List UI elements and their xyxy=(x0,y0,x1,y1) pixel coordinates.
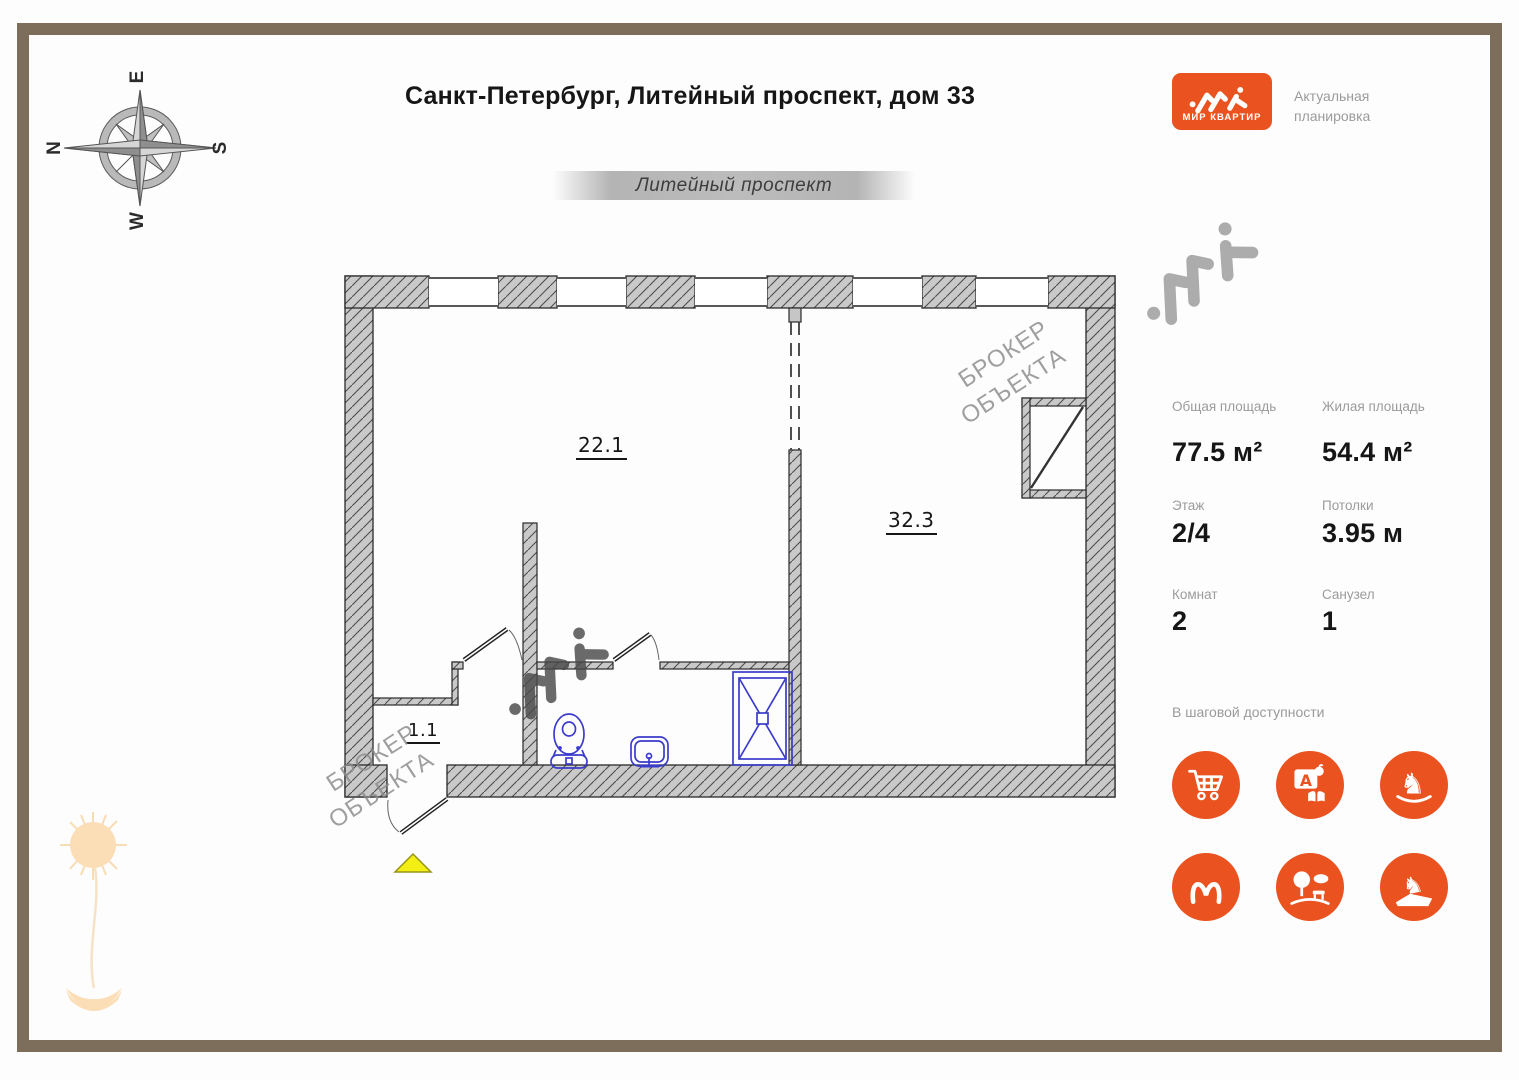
amenity-monument: ♞ xyxy=(1380,853,1448,921)
rooms-label: Комнат xyxy=(1172,585,1282,605)
svg-text:♞: ♞ xyxy=(1400,767,1426,801)
room-main-area-label: 22.1 xyxy=(576,433,627,460)
tagline-line2: планировка xyxy=(1294,106,1414,126)
metro-icon xyxy=(1184,865,1228,909)
school-icon: А xyxy=(1288,763,1332,807)
rocking-horse-icon: ♞ xyxy=(1391,762,1437,808)
street-banner: Литейный проспект xyxy=(553,171,915,200)
living-area-value: 54.4 м² xyxy=(1322,437,1412,468)
floor-value: 2/4 xyxy=(1172,518,1210,549)
compass-left-label: N xyxy=(44,135,70,161)
svg-text:А: А xyxy=(1300,772,1312,790)
mir-kvartir-logo: МИР КВАРТИР xyxy=(1172,73,1272,130)
floor-label: Этаж xyxy=(1172,496,1282,516)
living-area-label: Жилая площадь xyxy=(1322,397,1432,417)
total-area-label: Общая площадь xyxy=(1172,397,1282,417)
bathroom-label: Санузел xyxy=(1322,585,1432,605)
park-icon xyxy=(1288,865,1332,909)
logo-name: МИР КВАРТИР xyxy=(1172,112,1272,123)
flyer-page: Санкт-Петербург, Литейный проспект, дом … xyxy=(0,0,1519,1080)
amenities-title: В шаговой доступности xyxy=(1172,704,1324,720)
compass-right-label: S xyxy=(210,135,236,161)
bathroom-value: 1 xyxy=(1322,606,1337,637)
amenity-kindergarten: ♞ xyxy=(1380,751,1448,819)
rooms-value: 2 xyxy=(1172,606,1187,637)
tagline-line1: Актуальная xyxy=(1294,86,1414,106)
page-title: Санкт-Петербург, Литейный проспект, дом … xyxy=(340,82,1040,111)
logo-tagline: Актуальная планировка xyxy=(1294,86,1414,127)
amenity-park xyxy=(1276,853,1344,921)
room-second-area-label: 32.3 xyxy=(886,508,937,535)
compass-bottom-label: W xyxy=(127,208,153,234)
monument-icon: ♞ xyxy=(1391,864,1437,910)
amenity-shopping xyxy=(1172,751,1240,819)
ceiling-value: 3.95 м xyxy=(1322,518,1403,549)
amenity-school: А xyxy=(1276,751,1344,819)
ceiling-label: Потолки xyxy=(1322,496,1432,516)
shopping-cart-icon xyxy=(1184,763,1228,807)
compass-top-label: E xyxy=(127,64,153,90)
total-area-value: 77.5 м² xyxy=(1172,437,1262,468)
street-name: Литейный проспект xyxy=(636,175,832,197)
amenity-metro xyxy=(1172,853,1240,921)
